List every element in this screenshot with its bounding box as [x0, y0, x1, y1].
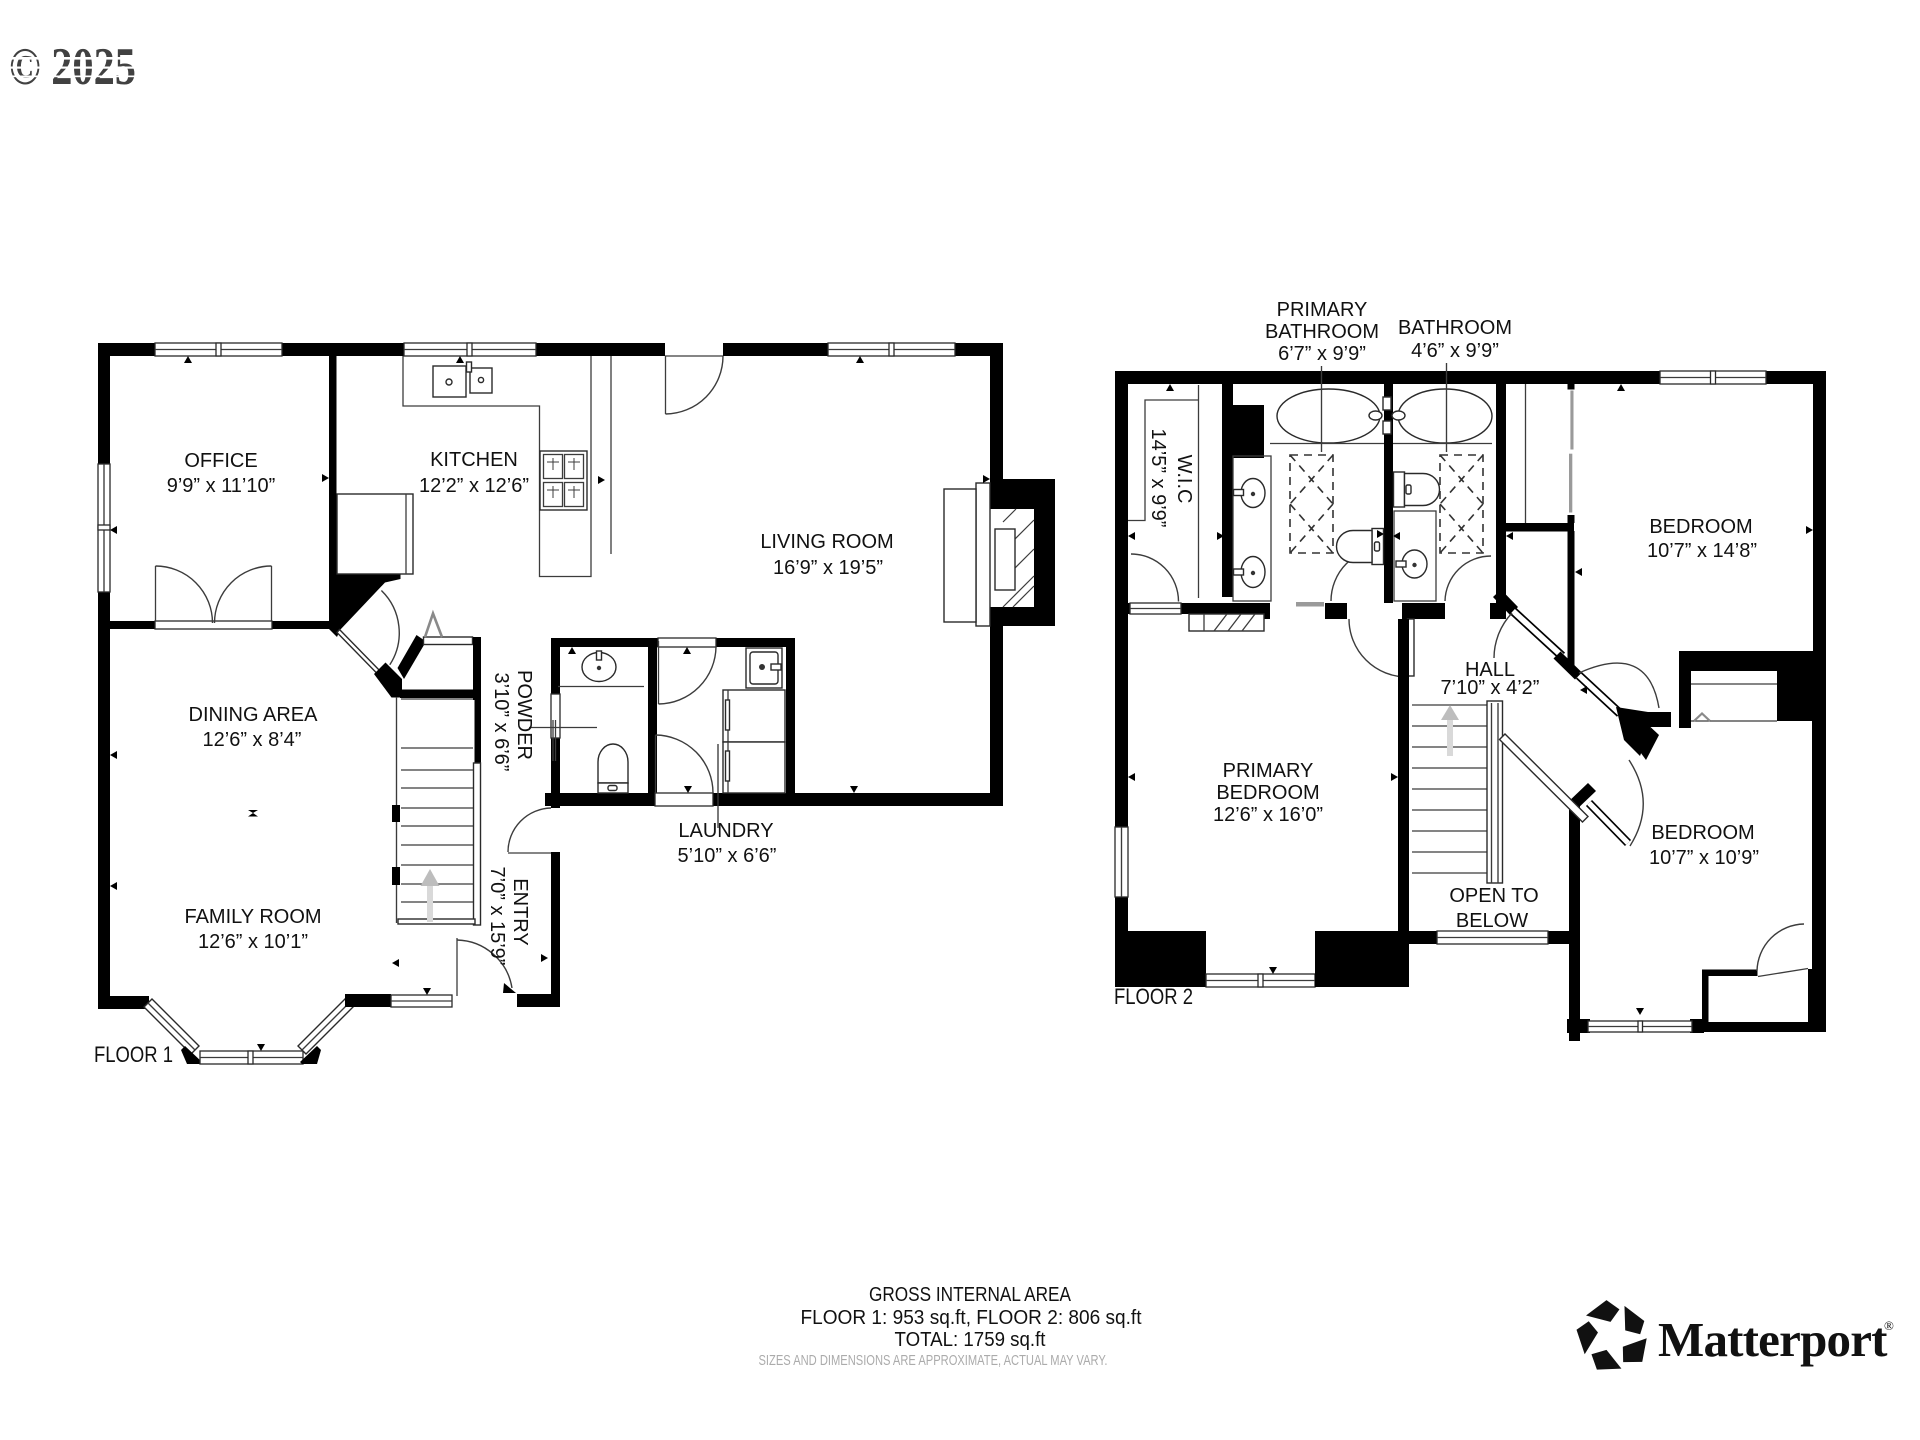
svg-text:PRIMARY: PRIMARY: [1277, 299, 1368, 321]
svg-text:10’7” x 10’9”: 10’7” x 10’9”: [1649, 847, 1759, 869]
svg-text:KITCHEN: KITCHEN: [430, 449, 518, 471]
svg-text:12’2” x 12’6”: 12’2” x 12’6”: [419, 475, 529, 497]
svg-text:FAMILY ROOM: FAMILY ROOM: [184, 906, 321, 928]
svg-text:FLOOR 2: FLOOR 2: [1114, 984, 1193, 1009]
svg-text:6’7” x 9’9”: 6’7” x 9’9”: [1278, 343, 1366, 365]
svg-text:16’9” x 19’5”: 16’9” x 19’5”: [773, 557, 883, 579]
svg-text:LIVING ROOM: LIVING ROOM: [760, 531, 893, 553]
svg-text:10’7” x 14’8”: 10’7” x 14’8”: [1647, 540, 1757, 562]
svg-text:12’6” x 16’0”: 12’6” x 16’0”: [1213, 804, 1323, 826]
svg-text:W.I.C: W.I.C: [1173, 455, 1195, 504]
svg-text:OPEN TO: OPEN TO: [1449, 885, 1538, 907]
svg-text:PRIMARY: PRIMARY: [1223, 760, 1314, 782]
svg-text:OFFICE: OFFICE: [184, 450, 257, 472]
svg-text:12’6” x 8’4”: 12’6” x 8’4”: [203, 729, 302, 751]
svg-text:ENTRY: ENTRY: [509, 878, 531, 945]
svg-text:7’0” x 15’9”: 7’0” x 15’9”: [486, 867, 508, 966]
svg-text:4’6” x 9’9”: 4’6” x 9’9”: [1411, 340, 1499, 362]
svg-text:9’9” x 11’10”: 9’9” x 11’10”: [167, 475, 276, 497]
svg-text:TOTAL: 1759 sq.ft: TOTAL: 1759 sq.ft: [895, 1329, 1046, 1351]
svg-text:3’10” x 6’6”: 3’10” x 6’6”: [490, 673, 512, 772]
svg-text:®: ®: [1884, 1318, 1894, 1333]
svg-text:12’6” x 10’1”: 12’6” x 10’1”: [198, 931, 308, 953]
svg-text:14’5” x 9’9”: 14’5” x 9’9”: [1147, 429, 1169, 528]
svg-text:BEDROOM: BEDROOM: [1216, 782, 1319, 804]
svg-text:Matterport: Matterport: [1658, 1312, 1888, 1367]
svg-text:FLOOR 1: 953 sq.ft, FLOOR 2: 8: FLOOR 1: 953 sq.ft, FLOOR 2: 806 sq.ft: [801, 1307, 1142, 1329]
svg-text:POWDER: POWDER: [513, 670, 535, 760]
svg-text:LAUNDRY: LAUNDRY: [678, 820, 773, 842]
svg-text:BEDROOM: BEDROOM: [1651, 822, 1754, 844]
svg-text:FLOOR 1: FLOOR 1: [94, 1042, 173, 1067]
svg-text:5’10” x 6’6”: 5’10” x 6’6”: [678, 845, 777, 867]
svg-text:DINING AREA: DINING AREA: [189, 704, 319, 726]
svg-text:BATHROOM: BATHROOM: [1265, 321, 1379, 343]
svg-text:7’10” x 4’2”: 7’10” x 4’2”: [1441, 677, 1540, 699]
svg-text:GROSS INTERNAL AREA: GROSS INTERNAL AREA: [869, 1284, 1072, 1306]
svg-text:BATHROOM: BATHROOM: [1398, 317, 1512, 339]
svg-text:BELOW: BELOW: [1456, 910, 1528, 932]
svg-text:SIZES AND DIMENSIONS ARE APPRO: SIZES AND DIMENSIONS ARE APPROXIMATE, AC…: [759, 1352, 1108, 1369]
svg-text:BEDROOM: BEDROOM: [1649, 516, 1752, 538]
